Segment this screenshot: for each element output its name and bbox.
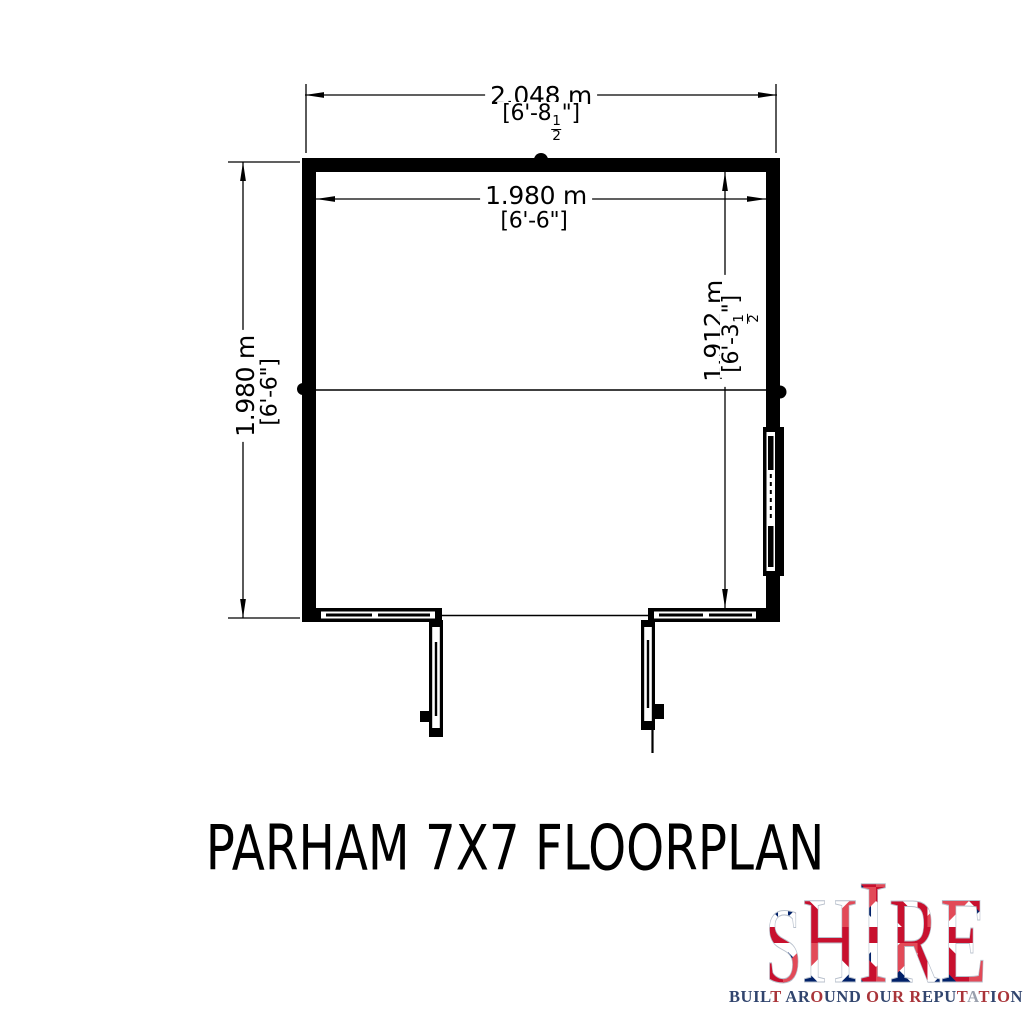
dim-inner-depth-imperial-pre: [6'-3 bbox=[719, 324, 744, 373]
dim-arrow-inner-width-left bbox=[316, 196, 335, 202]
side-window bbox=[763, 427, 784, 576]
brand-logo-lettering: SHIRE bbox=[728, 876, 1024, 988]
dim-arrow-top-left bbox=[305, 92, 324, 98]
dim-inner-depth-imperial-post: "] bbox=[719, 295, 744, 313]
ridge-marker-right bbox=[774, 386, 787, 399]
dim-inner-width-imperial-label: [6'-6"] bbox=[495, 209, 572, 232]
dim-inner-width-metric-label: 1.980 m bbox=[480, 183, 592, 209]
brand-logo-text: SHIRE bbox=[765, 876, 987, 988]
dim-left-metric-text: 1.980 m bbox=[231, 335, 260, 437]
dim-top-imperial-fraction: 12 bbox=[551, 115, 561, 144]
door-handle-left bbox=[420, 711, 430, 722]
logo-letter-r: R bbox=[889, 876, 940, 988]
dim-left-imperial-label: [6'-6"] bbox=[258, 353, 281, 430]
front-panel-right bbox=[654, 612, 756, 619]
page-title: PARHAM 7X7 FLOORPLAN bbox=[206, 812, 825, 885]
front-panel-right-bar2 bbox=[709, 614, 752, 617]
logo-letter-i: I bbox=[858, 876, 889, 988]
dim-left-imperial-text: [6'-6"] bbox=[257, 358, 282, 425]
dim-inner-depth-imperial-fraction: 12 bbox=[733, 313, 762, 323]
dim-top-frac-den: 2 bbox=[552, 130, 560, 144]
dim-arrow-top-right bbox=[758, 92, 777, 98]
dim-top-imperial-label: [6'-812"] bbox=[497, 102, 585, 144]
dim-inner-depth-frac-den: 2 bbox=[748, 314, 762, 322]
side-window-pane2 bbox=[768, 526, 774, 567]
floorplan-page: 2.048 m [6'-812"] 1.980 m [6'-6"] 1.980 … bbox=[0, 0, 1024, 1024]
dim-inner-depth-imperial-label: [6'-312"] bbox=[720, 290, 762, 378]
side-window-pane1 bbox=[768, 436, 774, 470]
dim-arrow-inner-width-right bbox=[747, 196, 766, 202]
door-leaf-left bbox=[420, 620, 443, 737]
dim-top-imperial-pre: [6'-8 bbox=[502, 101, 551, 126]
front-panel-left-bar1 bbox=[326, 614, 372, 617]
dim-top-imperial-post: "] bbox=[562, 101, 580, 126]
brand-logo: SHIRE BUILT AROUND OUR REPUTATION bbox=[728, 876, 1024, 1006]
front-panel-left-bar2 bbox=[378, 614, 430, 617]
dim-arrow-left-top bbox=[240, 162, 246, 181]
front-panel-right-bar1 bbox=[659, 614, 703, 617]
dim-arrow-left-bottom bbox=[240, 599, 246, 618]
logo-tagline: BUILT AROUND OUR REPUTATION bbox=[729, 987, 1023, 1007]
logo-letter-h: H bbox=[802, 876, 858, 988]
apex-marker-top bbox=[534, 153, 548, 167]
dim-inner-width-metric-text: 1.980 m bbox=[485, 181, 587, 210]
dim-inner-width-imperial-text: [6'-6"] bbox=[500, 208, 567, 233]
dim-arrow-inner-depth-bottom bbox=[722, 589, 728, 608]
front-panel-left bbox=[321, 612, 435, 619]
logo-letter-e: E bbox=[940, 876, 987, 988]
dim-arrow-inner-depth-top bbox=[722, 172, 728, 191]
logo-letter-s: S bbox=[765, 887, 802, 988]
door-handle-right bbox=[654, 704, 664, 719]
door-leaf-right bbox=[641, 620, 664, 753]
dim-left-metric-label: 1.980 m bbox=[233, 330, 259, 442]
ridge-marker-left bbox=[297, 383, 309, 395]
